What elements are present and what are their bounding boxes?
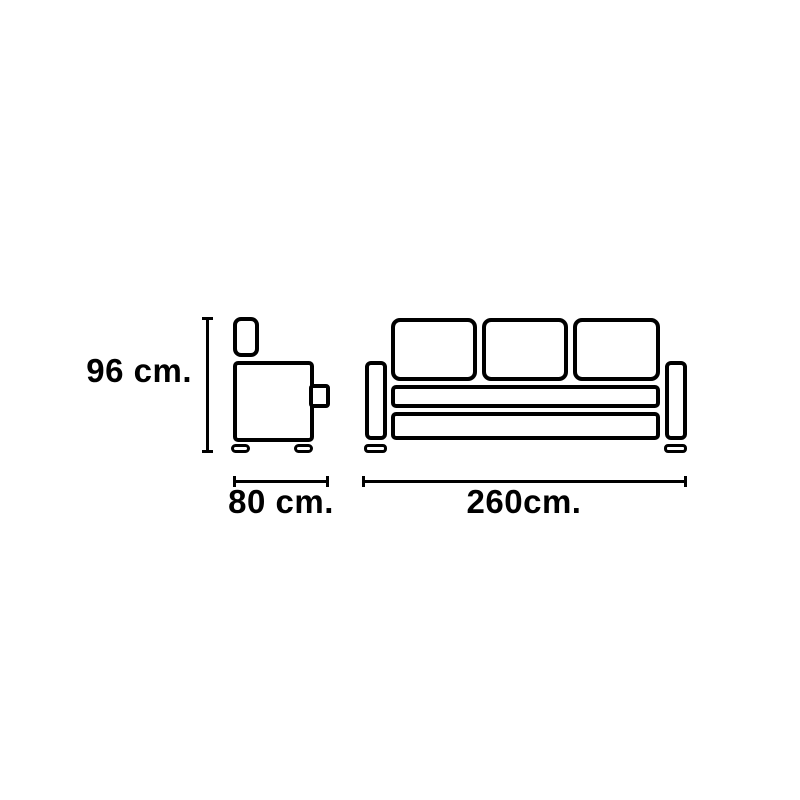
front-view-back-cushion-1 <box>391 318 477 381</box>
sofa-dimension-diagram: 96 cm. 80 cm. 260cm. <box>0 0 800 800</box>
front-view-foot-right <box>664 444 687 453</box>
height-dimension-cap-bottom <box>202 450 213 453</box>
front-view-armrest-left <box>365 361 387 440</box>
front-view-back-cushion-3 <box>573 318 660 381</box>
width-dimension-cap-left <box>362 476 365 487</box>
depth-dimension-label: 80 cm. <box>221 484 341 520</box>
front-view-seat-slat <box>391 385 660 408</box>
height-dimension-label: 96 cm. <box>60 353 192 389</box>
height-dimension-cap-top <box>202 317 213 320</box>
side-view-armrest-knob <box>309 384 330 408</box>
height-dimension-line <box>206 318 209 452</box>
front-view-foot-left <box>364 444 387 453</box>
front-view-back-cushion-2 <box>482 318 568 381</box>
side-view-headrest-cushion <box>233 317 259 357</box>
side-view-foot-left <box>231 444 250 453</box>
side-view-seat-body <box>233 361 314 442</box>
front-view-armrest-right <box>665 361 687 440</box>
width-dimension-cap-right <box>684 476 687 487</box>
side-view-foot-right <box>294 444 313 453</box>
width-dimension-label: 260cm. <box>424 484 624 520</box>
front-view-base-slat <box>391 412 660 440</box>
